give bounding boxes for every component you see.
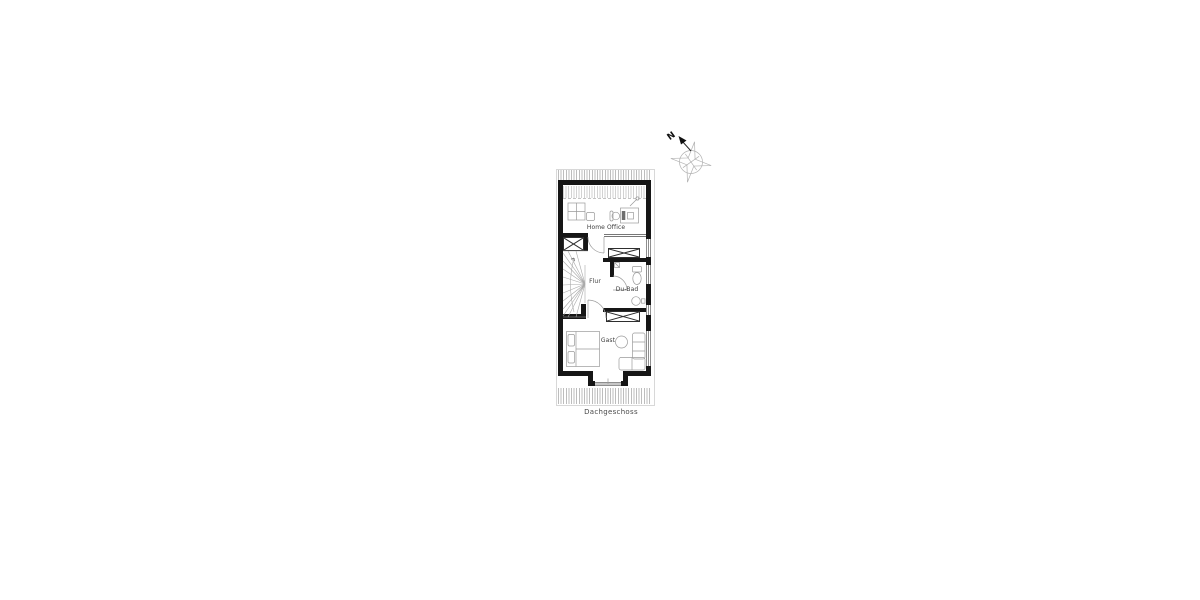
- guest-sofa: [619, 333, 645, 370]
- home-office-shelf: [568, 203, 595, 221]
- compass-rose: N: [666, 130, 715, 185]
- guest-table: [616, 336, 628, 348]
- toilet: [633, 267, 642, 285]
- north-label: N: [666, 130, 678, 143]
- guest-bed: [567, 332, 600, 367]
- sink: [632, 297, 645, 306]
- room-label-gast: Gast: [601, 337, 615, 344]
- room-label-flur: Flur: [589, 278, 601, 285]
- home-office-desk: [621, 197, 640, 223]
- north-arrowhead: [679, 136, 687, 145]
- door-guest: [588, 300, 606, 318]
- door-home-office: [588, 237, 604, 253]
- floor-title: Dachgeschoss: [584, 408, 638, 416]
- floor-plan-page: N Home Office Flur Du-Bad Gast Dachgesch…: [0, 0, 1200, 600]
- staircase: [563, 251, 588, 317]
- plan-lineart: N: [540, 120, 730, 420]
- office-chair: [610, 211, 620, 221]
- vent-icon: [615, 263, 620, 268]
- room-label-home-office: Home Office: [587, 224, 625, 231]
- room-label-du-bad: Du-Bad: [616, 286, 639, 293]
